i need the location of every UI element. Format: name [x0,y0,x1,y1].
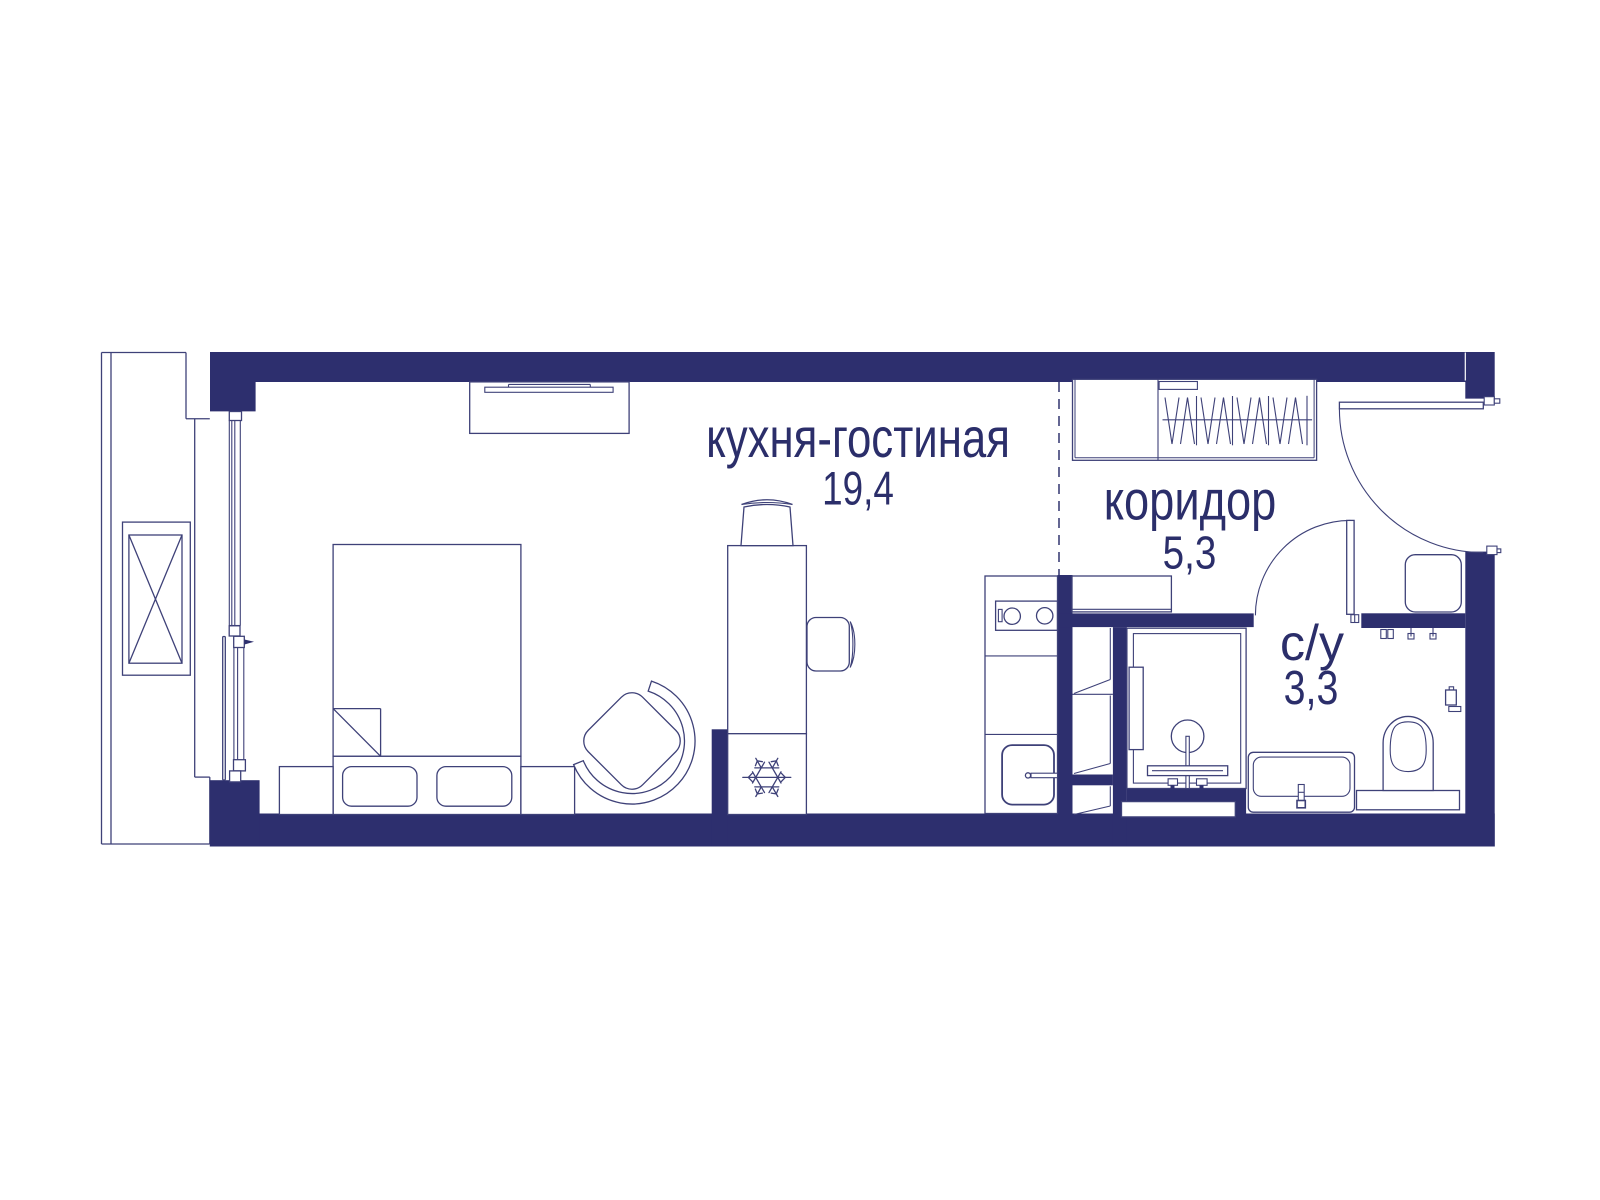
svg-text:5,3: 5,3 [1163,527,1217,579]
svg-text:3,3: 3,3 [1284,661,1339,715]
svg-text:19,4: 19,4 [822,462,894,514]
svg-text:коридор: коридор [1104,469,1277,532]
svg-text:кухня-гостиная: кухня-гостиная [706,407,1010,469]
